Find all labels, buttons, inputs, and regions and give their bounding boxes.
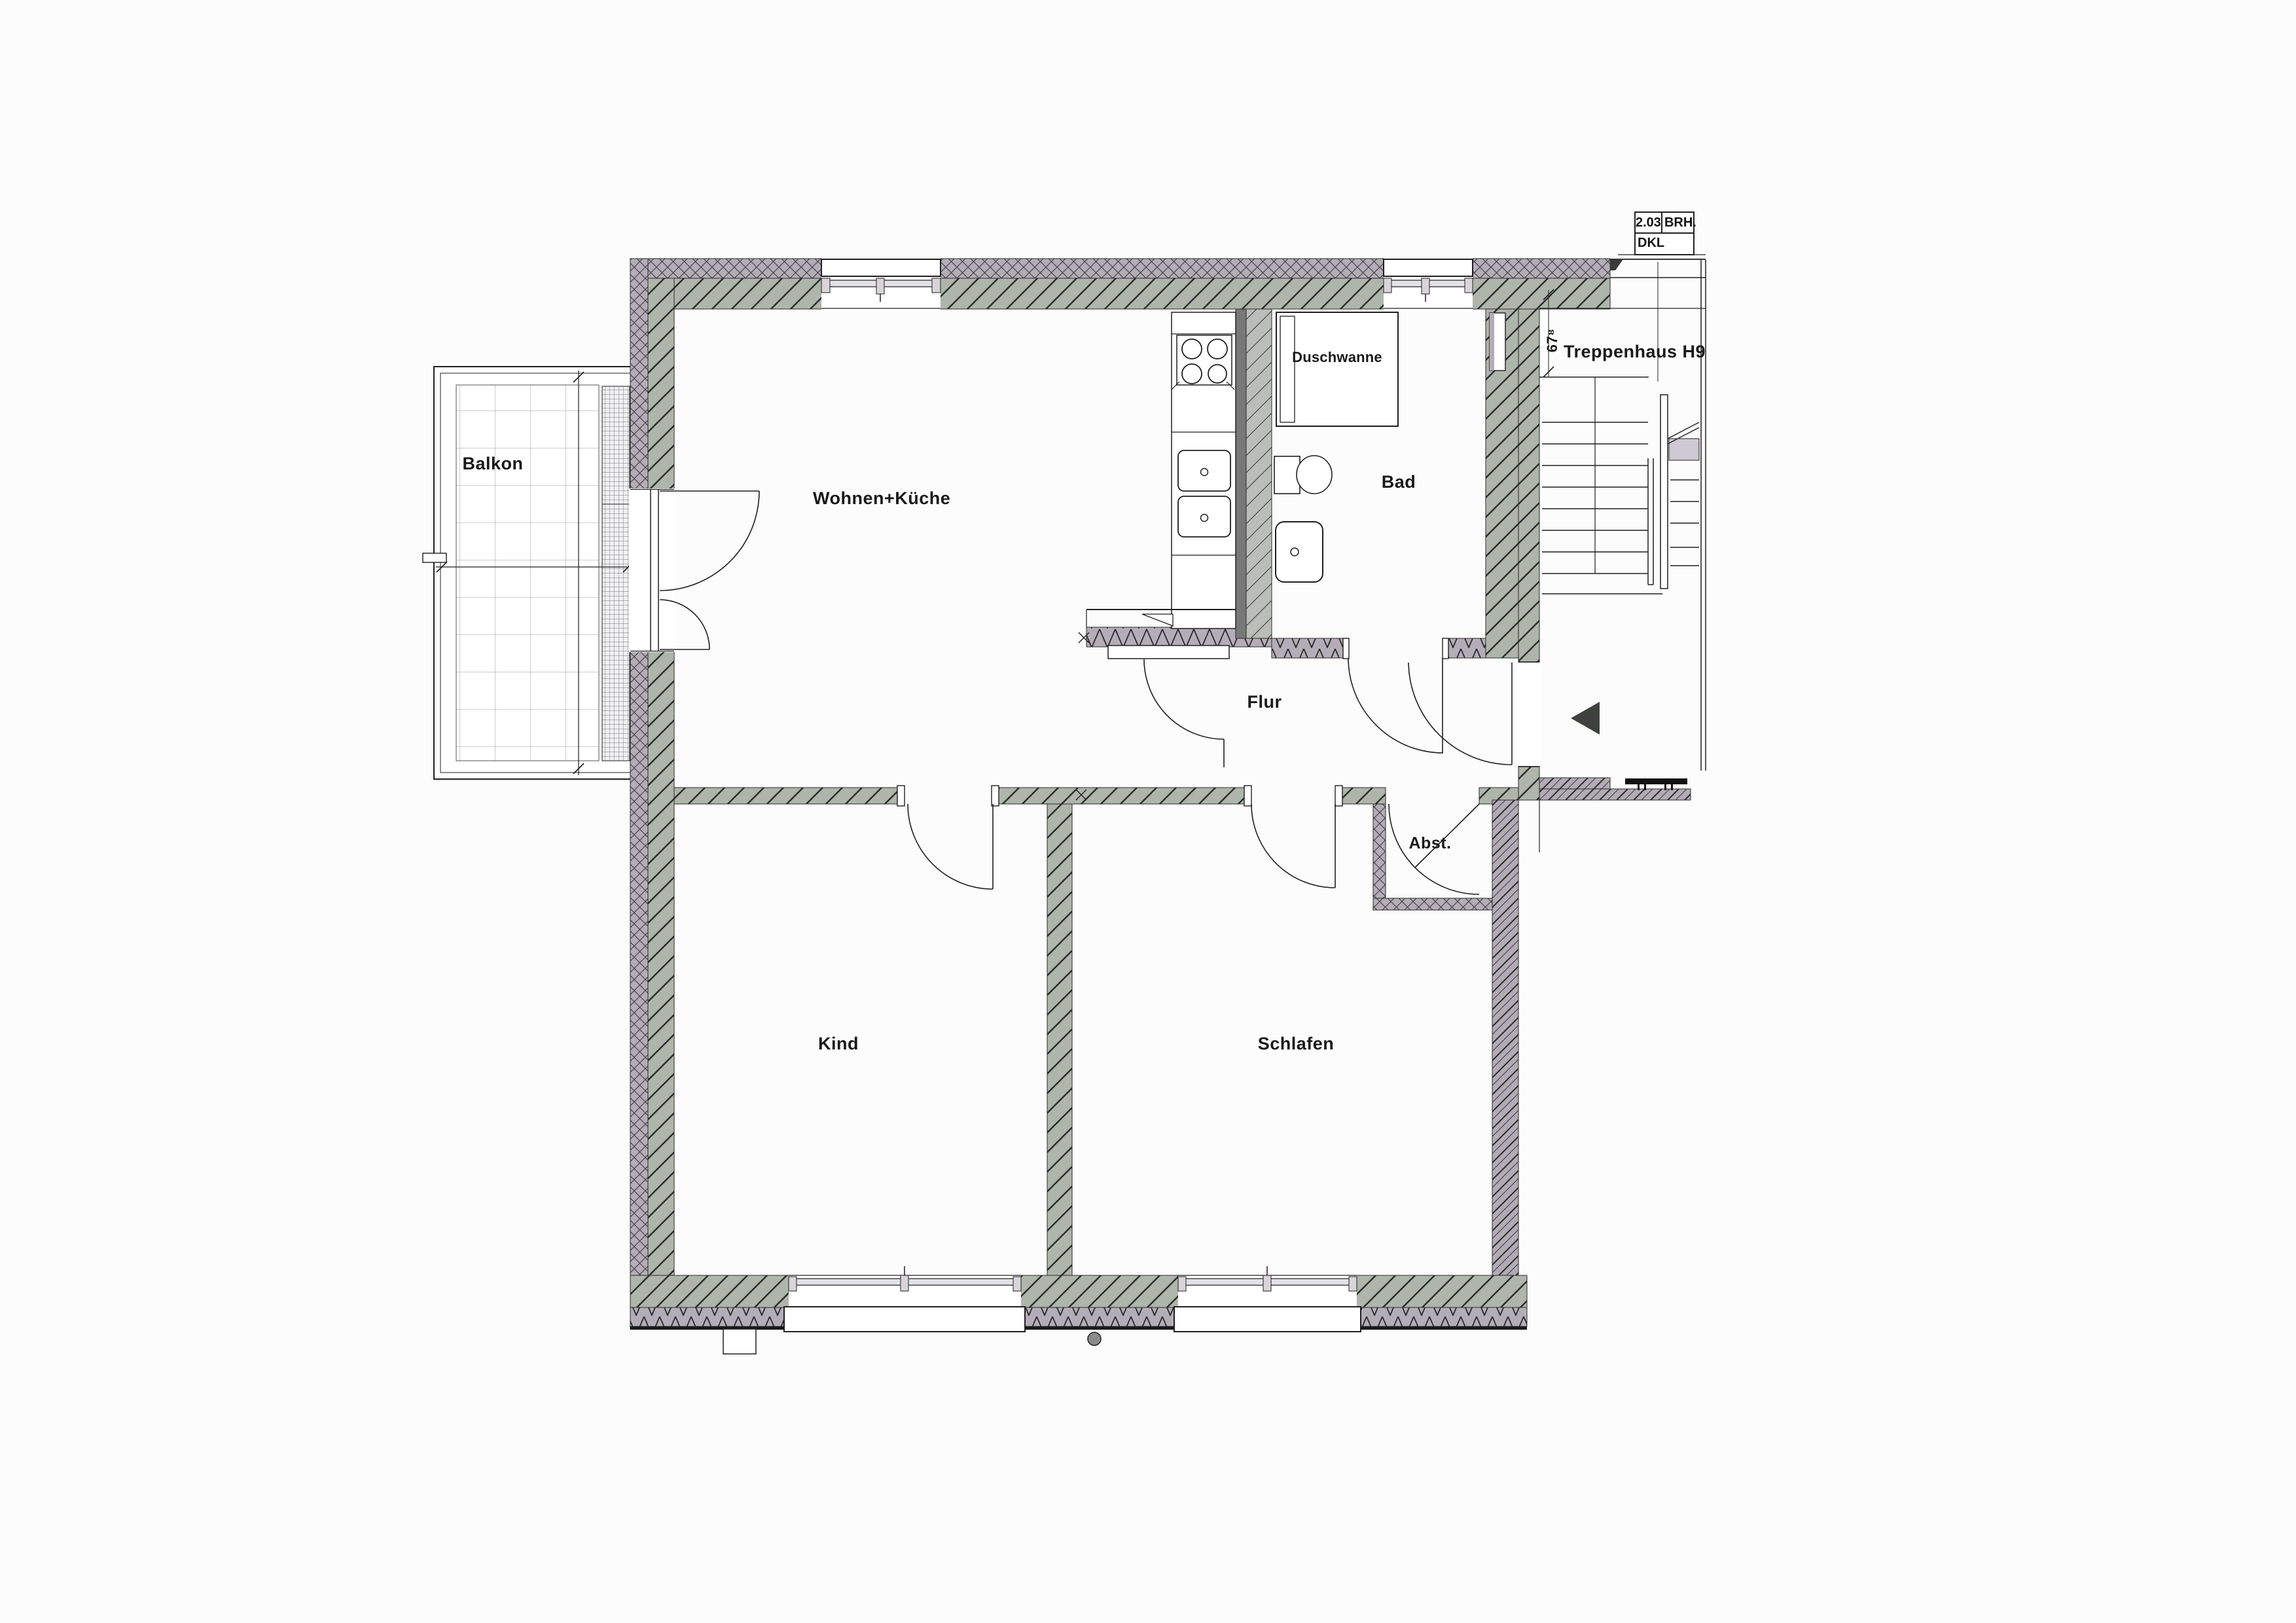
entrance-arrow-icon — [1571, 702, 1600, 735]
fixture-label-duschwanne: Duschwanne — [1285, 349, 1390, 366]
door-schlafen — [1251, 804, 1335, 888]
window-bad-north — [1384, 257, 1473, 310]
door-entry — [1408, 663, 1512, 765]
survey-point — [1088, 1332, 1101, 1345]
info-box-brh: BRH. — [1662, 213, 1696, 232]
balcony-drain-tab — [423, 553, 446, 562]
floor-plan-drawing — [0, 0, 2296, 1623]
foundation-tab — [723, 1329, 756, 1354]
washbasin-icon — [1276, 522, 1323, 582]
toilet-icon — [1274, 456, 1332, 494]
door-wohnen-flur — [1108, 646, 1229, 767]
door-bad — [1348, 658, 1443, 753]
balcony-door-opening — [629, 488, 675, 652]
window-kind-south — [784, 1266, 1025, 1332]
wall-left-masonry — [648, 278, 674, 1275]
info-box-room-number: 2.03 — [1636, 213, 1662, 232]
room-label-bad: Bad — [1379, 472, 1418, 492]
misc-marks — [723, 632, 1101, 1354]
window-schlafen-south — [1174, 1266, 1361, 1332]
floor-plan-sheet: Balkon Wohnen+Küche Duschwanne Bad Trepp… — [0, 0, 2296, 1623]
building-cut-lines — [1539, 255, 1706, 771]
room-label-kind: Kind — [818, 1034, 857, 1054]
walls — [630, 259, 1691, 1330]
dimension-label-67: 67⁸ — [1544, 321, 1561, 360]
landing-railing — [1625, 778, 1687, 790]
room-label-wohnen-kueche: Wohnen+Küche — [813, 488, 944, 509]
wall-schlafen-east — [1492, 800, 1518, 1275]
wall-bad-south — [1272, 638, 1518, 658]
shower-tray — [1276, 312, 1398, 426]
wall-kind-schlafen — [1047, 804, 1072, 1275]
room-label-schlafen: Schlafen — [1257, 1034, 1335, 1054]
wall-bottom-insulation — [630, 1307, 1527, 1326]
wall-treppenhaus-left — [1518, 309, 1539, 663]
door-posts — [897, 638, 1448, 806]
wall-left-insulation — [630, 259, 648, 1329]
info-box-dkl: DKL — [1636, 234, 1693, 253]
balcony-grating — [602, 386, 630, 761]
room-label-flur: Flur — [1245, 692, 1284, 712]
balcony — [423, 367, 653, 779]
door-kind — [908, 804, 993, 889]
balcony-tile-grid — [456, 385, 599, 761]
stove-icon — [1172, 335, 1234, 390]
room-label-abst: Abst. — [1407, 834, 1453, 853]
kitchen-fixtures — [1086, 312, 1236, 629]
entry-door-opening — [1517, 662, 1541, 767]
window-wohnen-north — [821, 257, 941, 310]
room-label-balkon: Balkon — [454, 454, 532, 474]
appliance-door-mark — [1142, 614, 1173, 626]
stair-upper-flight — [1668, 422, 1699, 566]
wall-kueche-bad — [1236, 309, 1272, 638]
info-box: 2.03 BRH. DKL — [1634, 211, 1695, 255]
wall-bottom-masonry — [630, 1275, 1527, 1307]
stair-handrail — [1648, 395, 1668, 589]
wall-flur-south — [674, 788, 1518, 804]
room-label-treppenhaus: Treppenhaus H9 — [1564, 342, 1695, 362]
